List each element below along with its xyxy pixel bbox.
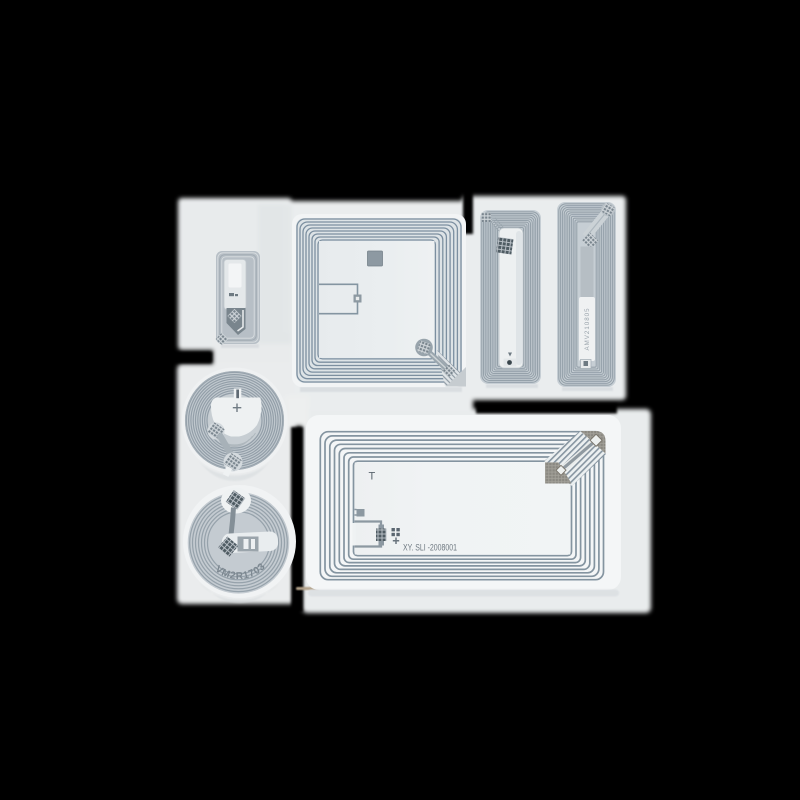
svg-text:XY. SLI -2008001: XY. SLI -2008001 (403, 543, 457, 553)
svg-text:AMV210805: AMV210805 (584, 307, 591, 350)
svg-text:T: T (369, 471, 376, 483)
